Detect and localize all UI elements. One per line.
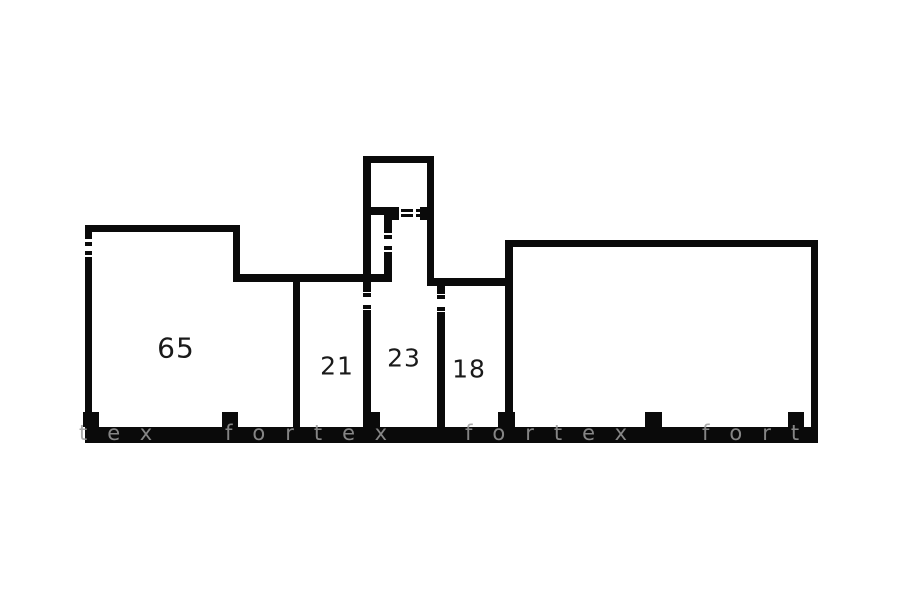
left-window-tick-1 [85,242,92,246]
divider-23-18-stub [437,286,445,294]
watermark-word: tex [79,423,172,444]
room18-top-wall [427,278,513,286]
closet-top-wall [363,207,392,215]
hall-top-wall [233,274,392,282]
divider-23-18-tick-1 [437,295,445,299]
pillar-5 [645,412,662,427]
door-dash-1b [401,214,413,217]
tower-top-wall [363,156,434,163]
door-jamb-right [420,207,427,220]
closet-window-tick-2 [384,246,392,250]
room-label-65: 65 [157,332,195,365]
divider-21-23-stub [363,282,371,292]
left-wall-lower [85,257,92,427]
divider-23-18 [437,312,445,427]
door-dash-1a [401,209,413,212]
divider-18-bigroom [505,240,513,427]
divider-21-23-tick-2 [363,305,371,309]
divider-23-18-tick-2 [437,307,445,311]
closet-right-wall-lower [384,252,392,274]
bigroom-top-wall [505,240,818,247]
bigroom-right-wall [811,240,818,427]
room65-top-wall [85,225,240,232]
tower-left-wall [363,156,371,274]
watermark-word: fortex [465,423,647,444]
closet-right-wall-upper [384,215,392,233]
room-label-23: 23 [387,344,421,373]
watermark-word: fortex [225,423,407,444]
closet-window-tick-1 [384,235,392,239]
floorplan: 65 21 23 18 texfortexfortexfort [0,0,900,604]
tower-right-wall [427,156,434,278]
divider-21-23 [363,310,371,427]
left-window-tick-2 [85,251,92,255]
room65-step-wall [233,231,240,275]
divider-21-23-tick-1 [363,293,371,297]
watermark-word: fort [702,423,819,444]
divider-65-21 [293,282,300,427]
room-label-18: 18 [452,355,486,384]
door-jamb-left [392,207,399,220]
room-label-21: 21 [320,352,354,381]
